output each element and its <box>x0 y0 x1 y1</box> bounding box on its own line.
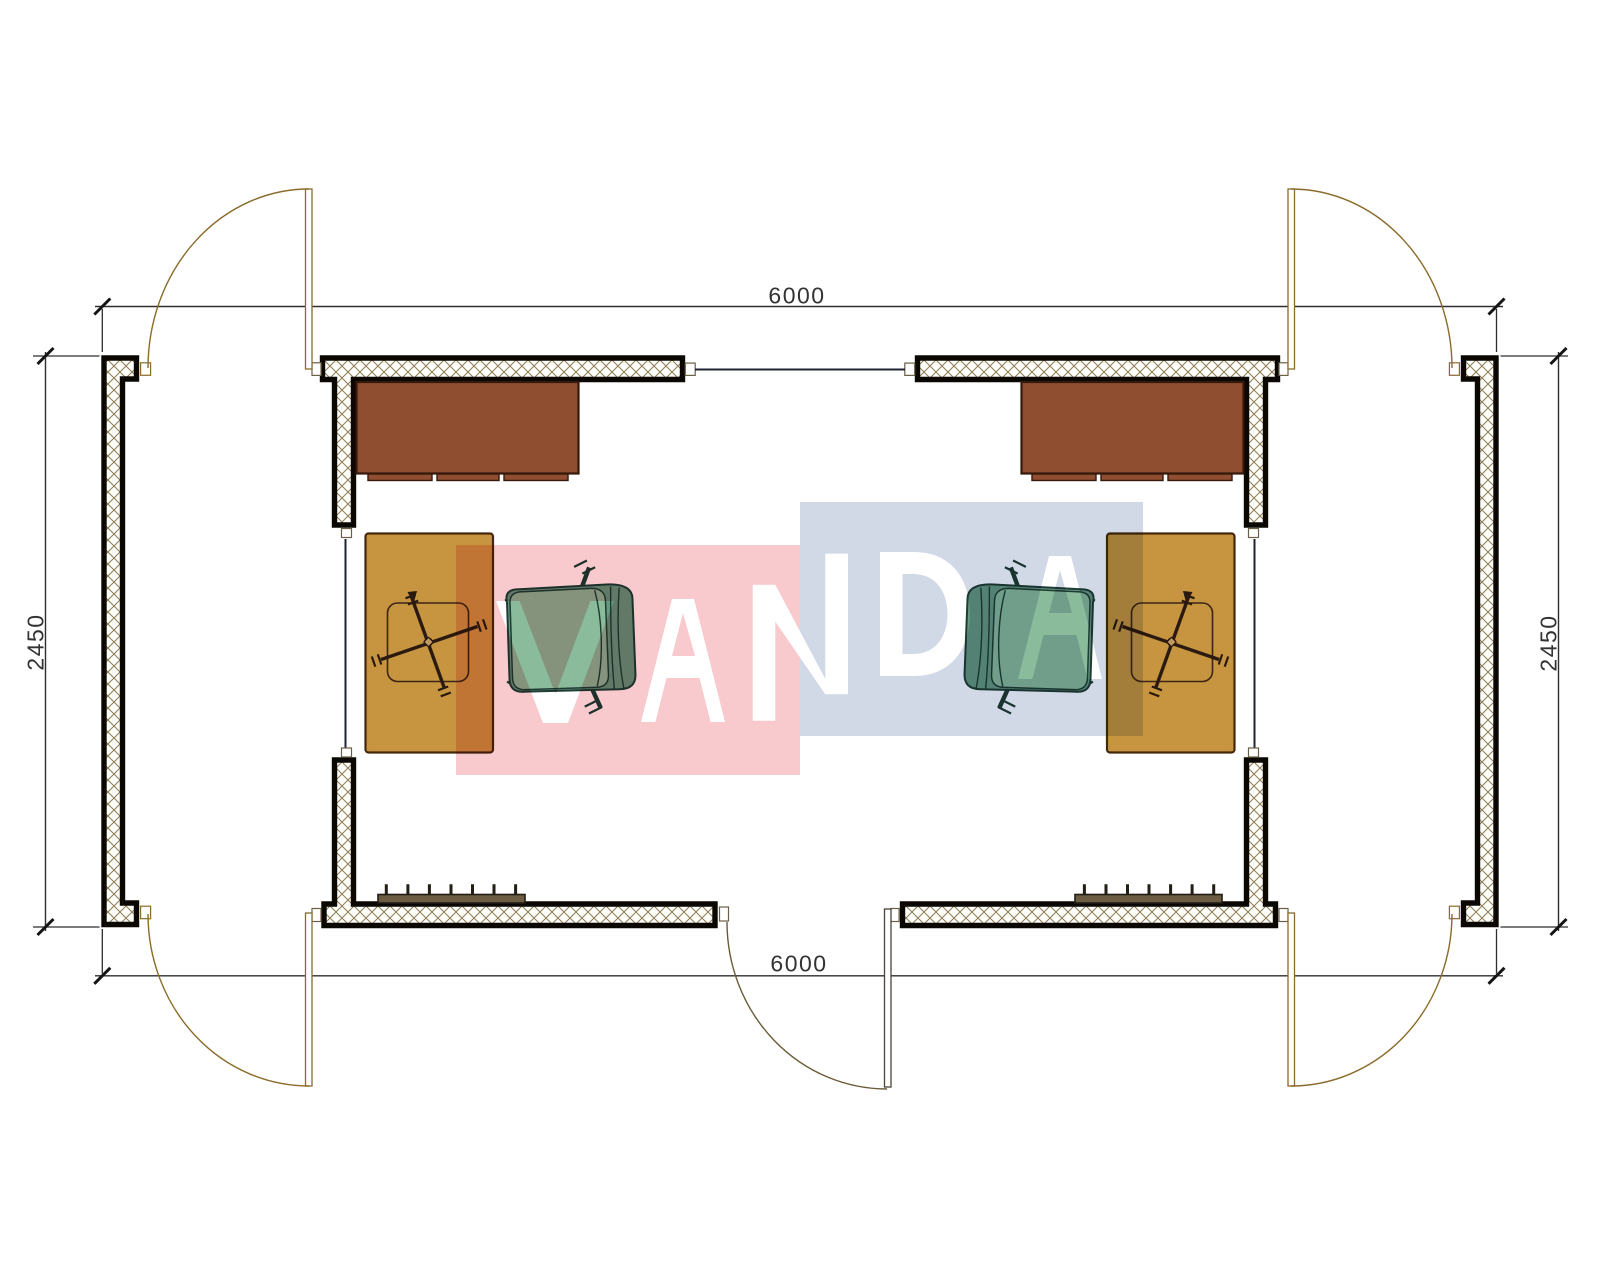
svg-text:6000: 6000 <box>768 283 825 309</box>
svg-text:2450: 2450 <box>1536 614 1562 671</box>
svg-text:6000: 6000 <box>770 951 827 977</box>
svg-text:2450: 2450 <box>23 613 49 670</box>
